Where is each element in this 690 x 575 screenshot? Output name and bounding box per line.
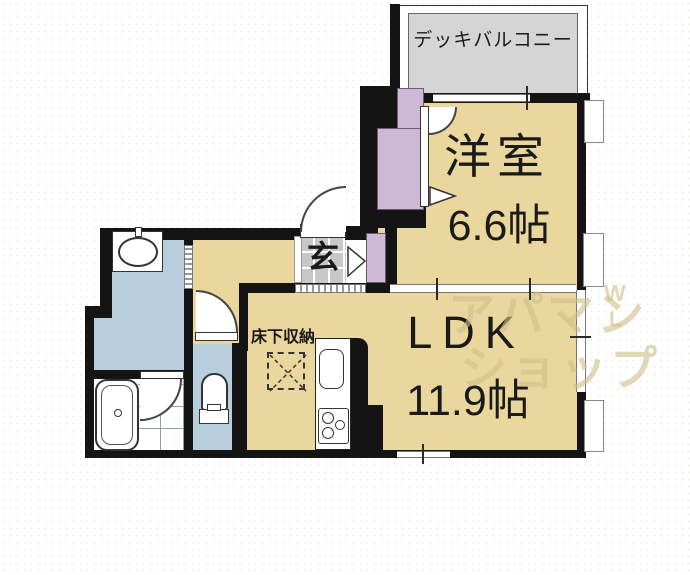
entrance-step-slider xyxy=(295,284,366,293)
window-east-3 xyxy=(584,400,604,452)
underfloor-storage-hatch xyxy=(267,352,305,390)
bathtub-drain xyxy=(114,409,122,417)
wall xyxy=(184,372,193,458)
watermark-line2: ショップ xyxy=(460,330,660,399)
window-east-1 xyxy=(584,100,604,143)
wall xyxy=(85,450,583,458)
watermark-side-w: W xyxy=(604,280,629,307)
kitchen-partition-wall xyxy=(350,338,368,408)
bathroom-door-leaf xyxy=(140,371,184,379)
front-door-panel xyxy=(366,233,386,283)
entrance-label: 玄 xyxy=(303,241,343,273)
toilet-tank xyxy=(199,409,229,424)
stove-burner xyxy=(322,427,334,439)
wall xyxy=(385,228,397,288)
washroom-floor-extension xyxy=(90,310,190,376)
window-tick xyxy=(526,86,528,110)
watermark-side-l: L xyxy=(609,308,625,332)
front-door-swing-arc xyxy=(300,186,346,232)
wall xyxy=(100,228,112,315)
balcony-window xyxy=(433,94,530,102)
stove-burner xyxy=(335,420,345,430)
deck-balcony-deck xyxy=(408,13,578,94)
washbasin-tap xyxy=(135,227,142,237)
washroom-accordion-door xyxy=(184,245,193,289)
balcony-label: デッキバルコニー xyxy=(400,31,586,50)
entrance-hall-divider xyxy=(294,236,302,283)
toilet-tank-notch xyxy=(207,404,221,411)
wall xyxy=(360,86,398,132)
window-tick xyxy=(422,444,424,464)
underfloor-storage-cross xyxy=(269,354,307,392)
wall xyxy=(360,128,378,213)
wall xyxy=(232,343,247,458)
toilet-door-leaf xyxy=(195,332,238,341)
underfloor-storage-label: 床下収納 xyxy=(245,330,321,346)
washbasin-bowl xyxy=(118,237,158,267)
entrance-storage-door-marker xyxy=(347,246,367,277)
western-room-size: 6.6帖 xyxy=(408,205,590,248)
western-room-name: 洋室 xyxy=(408,133,586,180)
floor-plan: デッキバルコニー 洋室 6.6帖 LDK 11.9帖 玄 床下収納 アパマン シ… xyxy=(0,0,690,575)
partition-tick xyxy=(436,278,438,300)
stove-burner xyxy=(322,412,334,424)
kitchen-sink xyxy=(319,349,344,389)
wall xyxy=(85,306,94,458)
